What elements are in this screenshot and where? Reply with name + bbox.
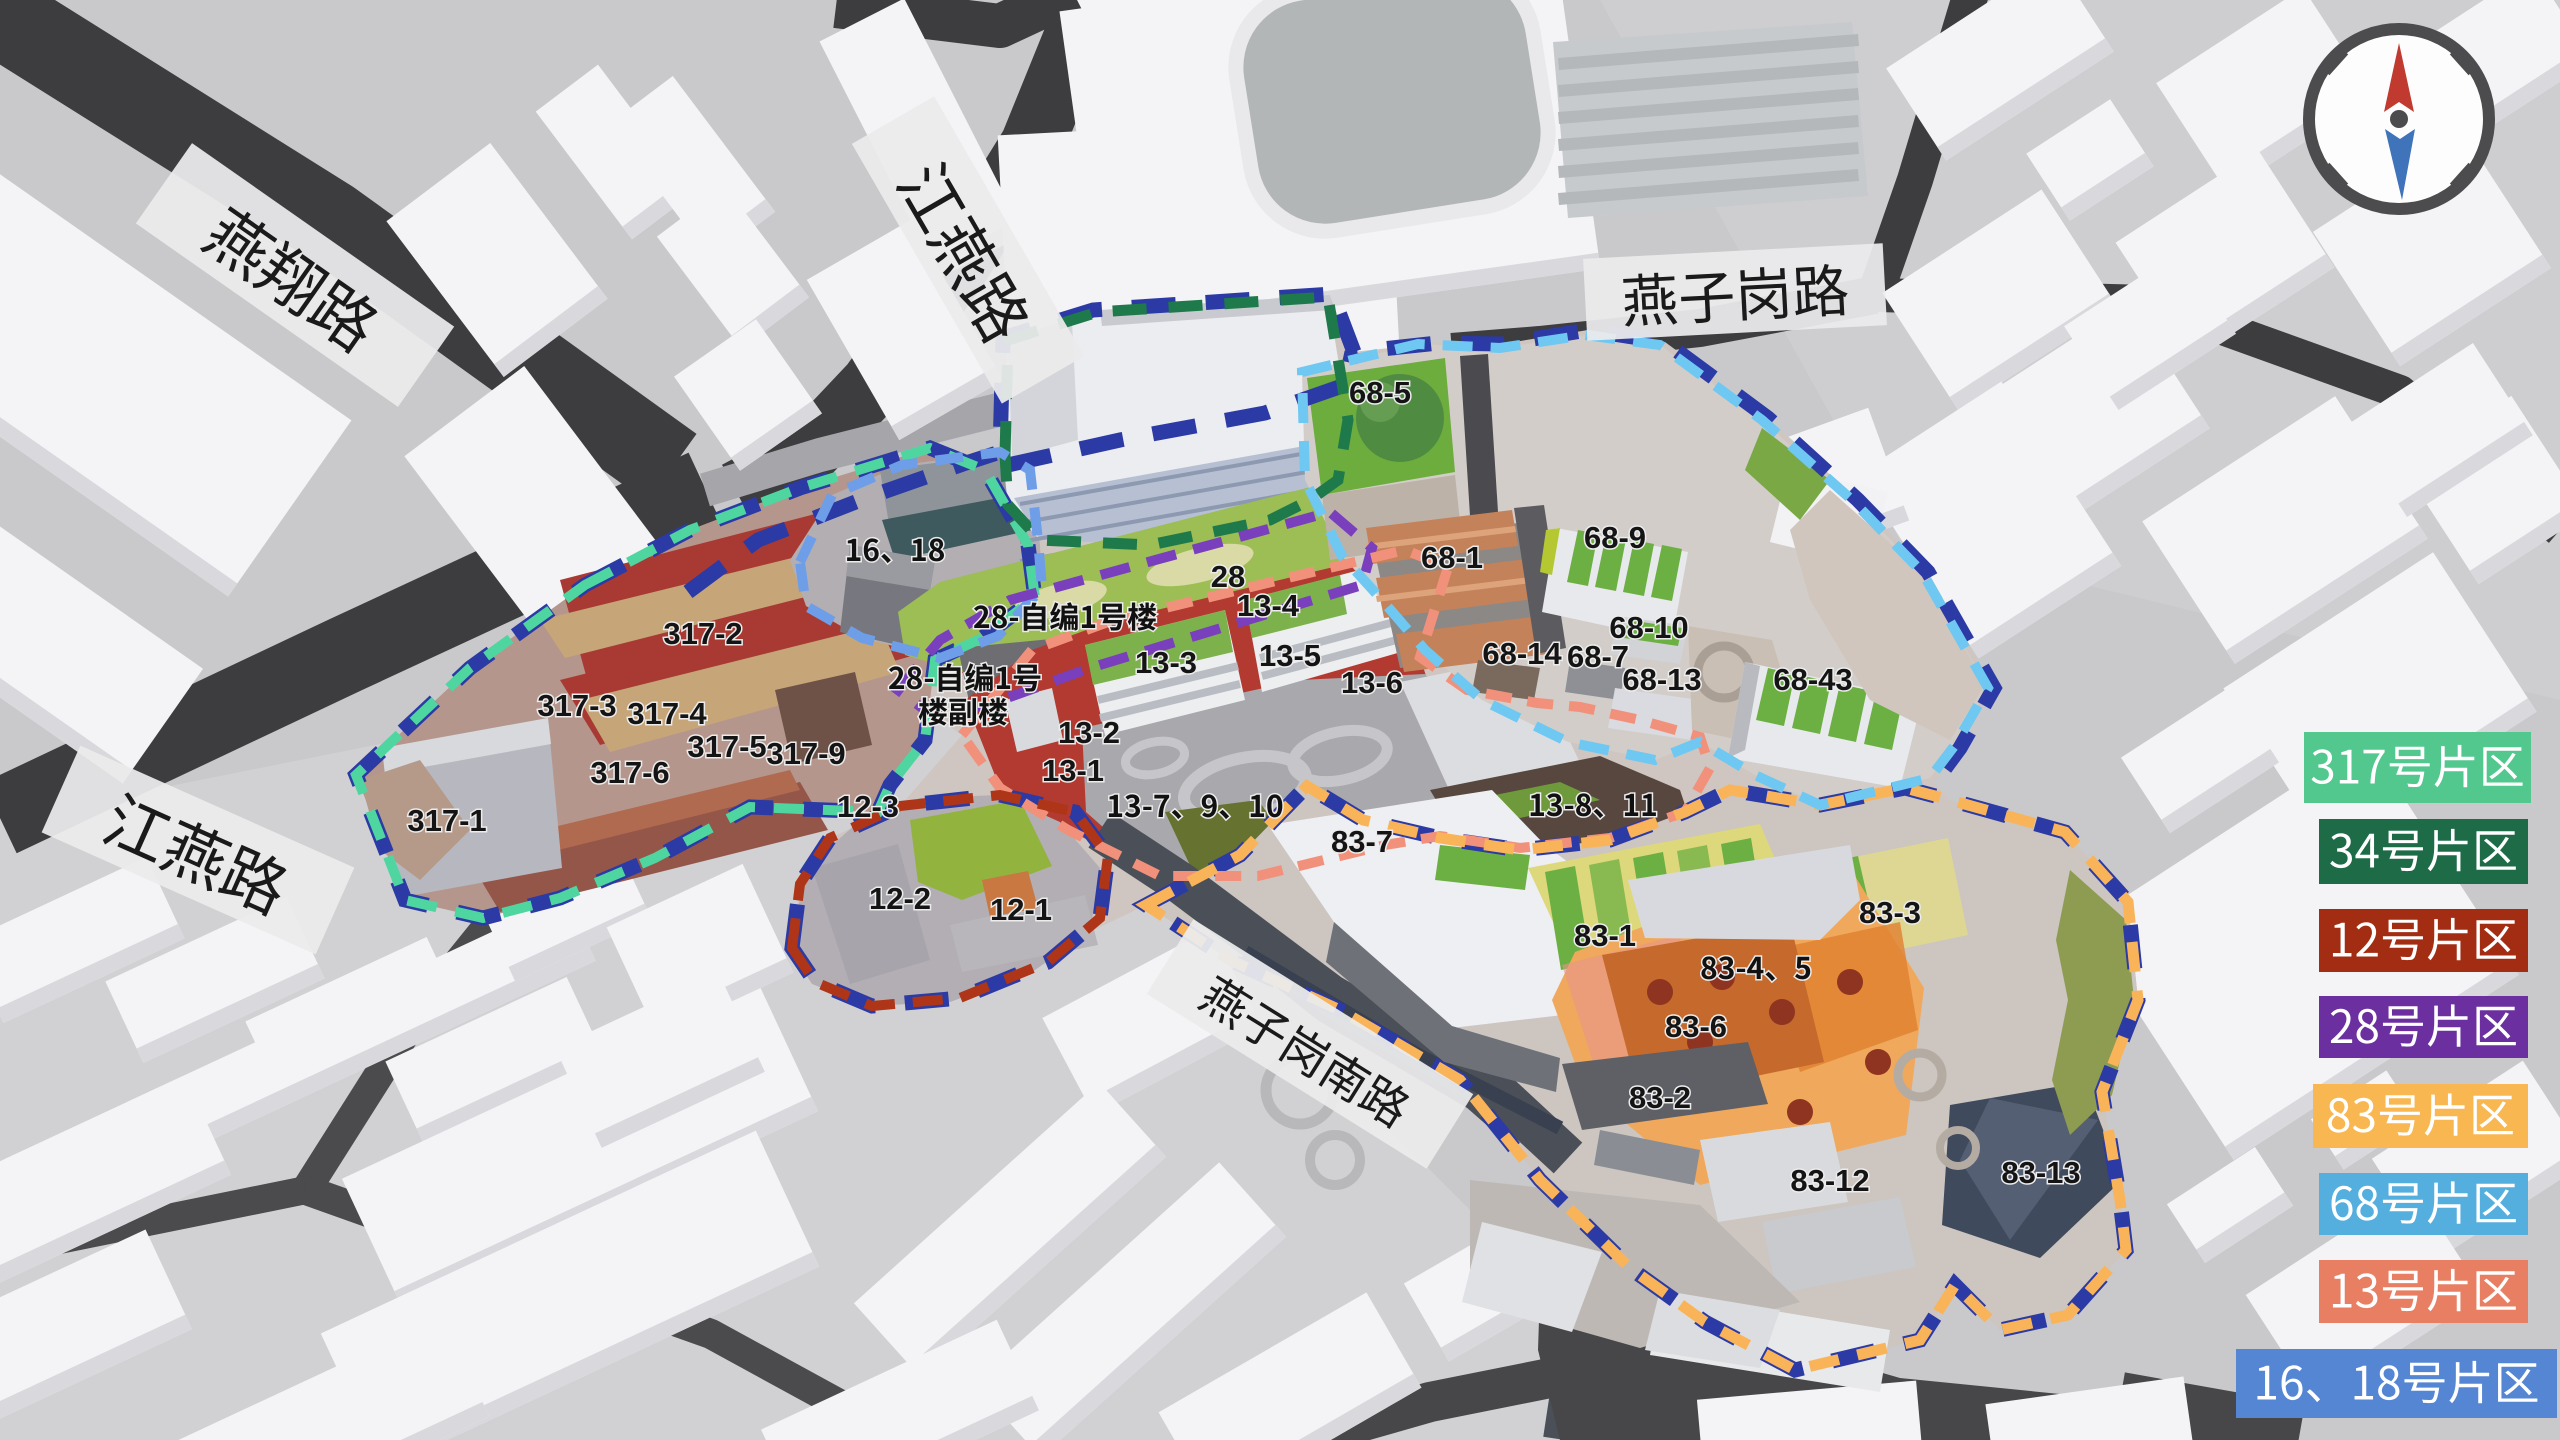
svg-text:317-4: 317-4 xyxy=(627,696,707,731)
svg-text:13-3: 13-3 xyxy=(1135,645,1197,680)
svg-text:68-13: 68-13 xyxy=(1622,662,1701,697)
svg-text:68-1: 68-1 xyxy=(1421,540,1483,575)
svg-text:13-4: 13-4 xyxy=(1237,588,1300,623)
svg-text:83-3: 83-3 xyxy=(1859,895,1921,930)
svg-text:12-2: 12-2 xyxy=(869,881,931,916)
svg-text:83-2: 83-2 xyxy=(1629,1080,1691,1115)
svg-text:317-2: 317-2 xyxy=(663,616,742,651)
svg-text:83-7: 83-7 xyxy=(1331,824,1393,859)
svg-text:317-5: 317-5 xyxy=(687,729,766,764)
svg-text:13-2: 13-2 xyxy=(1058,715,1120,750)
svg-text:13-1: 13-1 xyxy=(1042,753,1104,788)
svg-text:28: 28 xyxy=(1211,559,1245,594)
svg-text:68-14: 68-14 xyxy=(1482,636,1562,671)
svg-text:13-5: 13-5 xyxy=(1259,638,1321,673)
svg-text:12-3: 12-3 xyxy=(837,789,899,824)
svg-text:317-1: 317-1 xyxy=(407,803,486,838)
svg-text:68-9: 68-9 xyxy=(1584,520,1646,555)
svg-text:83-6: 83-6 xyxy=(1665,1009,1727,1044)
svg-text:83-13: 83-13 xyxy=(2001,1155,2080,1190)
svg-text:317-6: 317-6 xyxy=(590,755,669,790)
svg-text:68-43: 68-43 xyxy=(1773,662,1852,697)
svg-text:317-3: 317-3 xyxy=(537,688,616,723)
svg-text:68-5: 68-5 xyxy=(1349,375,1411,410)
svg-text:317-9: 317-9 xyxy=(766,736,845,771)
svg-text:68-7: 68-7 xyxy=(1567,639,1629,674)
svg-text:13-6: 13-6 xyxy=(1341,665,1403,700)
svg-text:83-12: 83-12 xyxy=(1790,1163,1869,1198)
svg-text:12-1: 12-1 xyxy=(990,892,1052,927)
svg-text:83-1: 83-1 xyxy=(1574,918,1636,953)
